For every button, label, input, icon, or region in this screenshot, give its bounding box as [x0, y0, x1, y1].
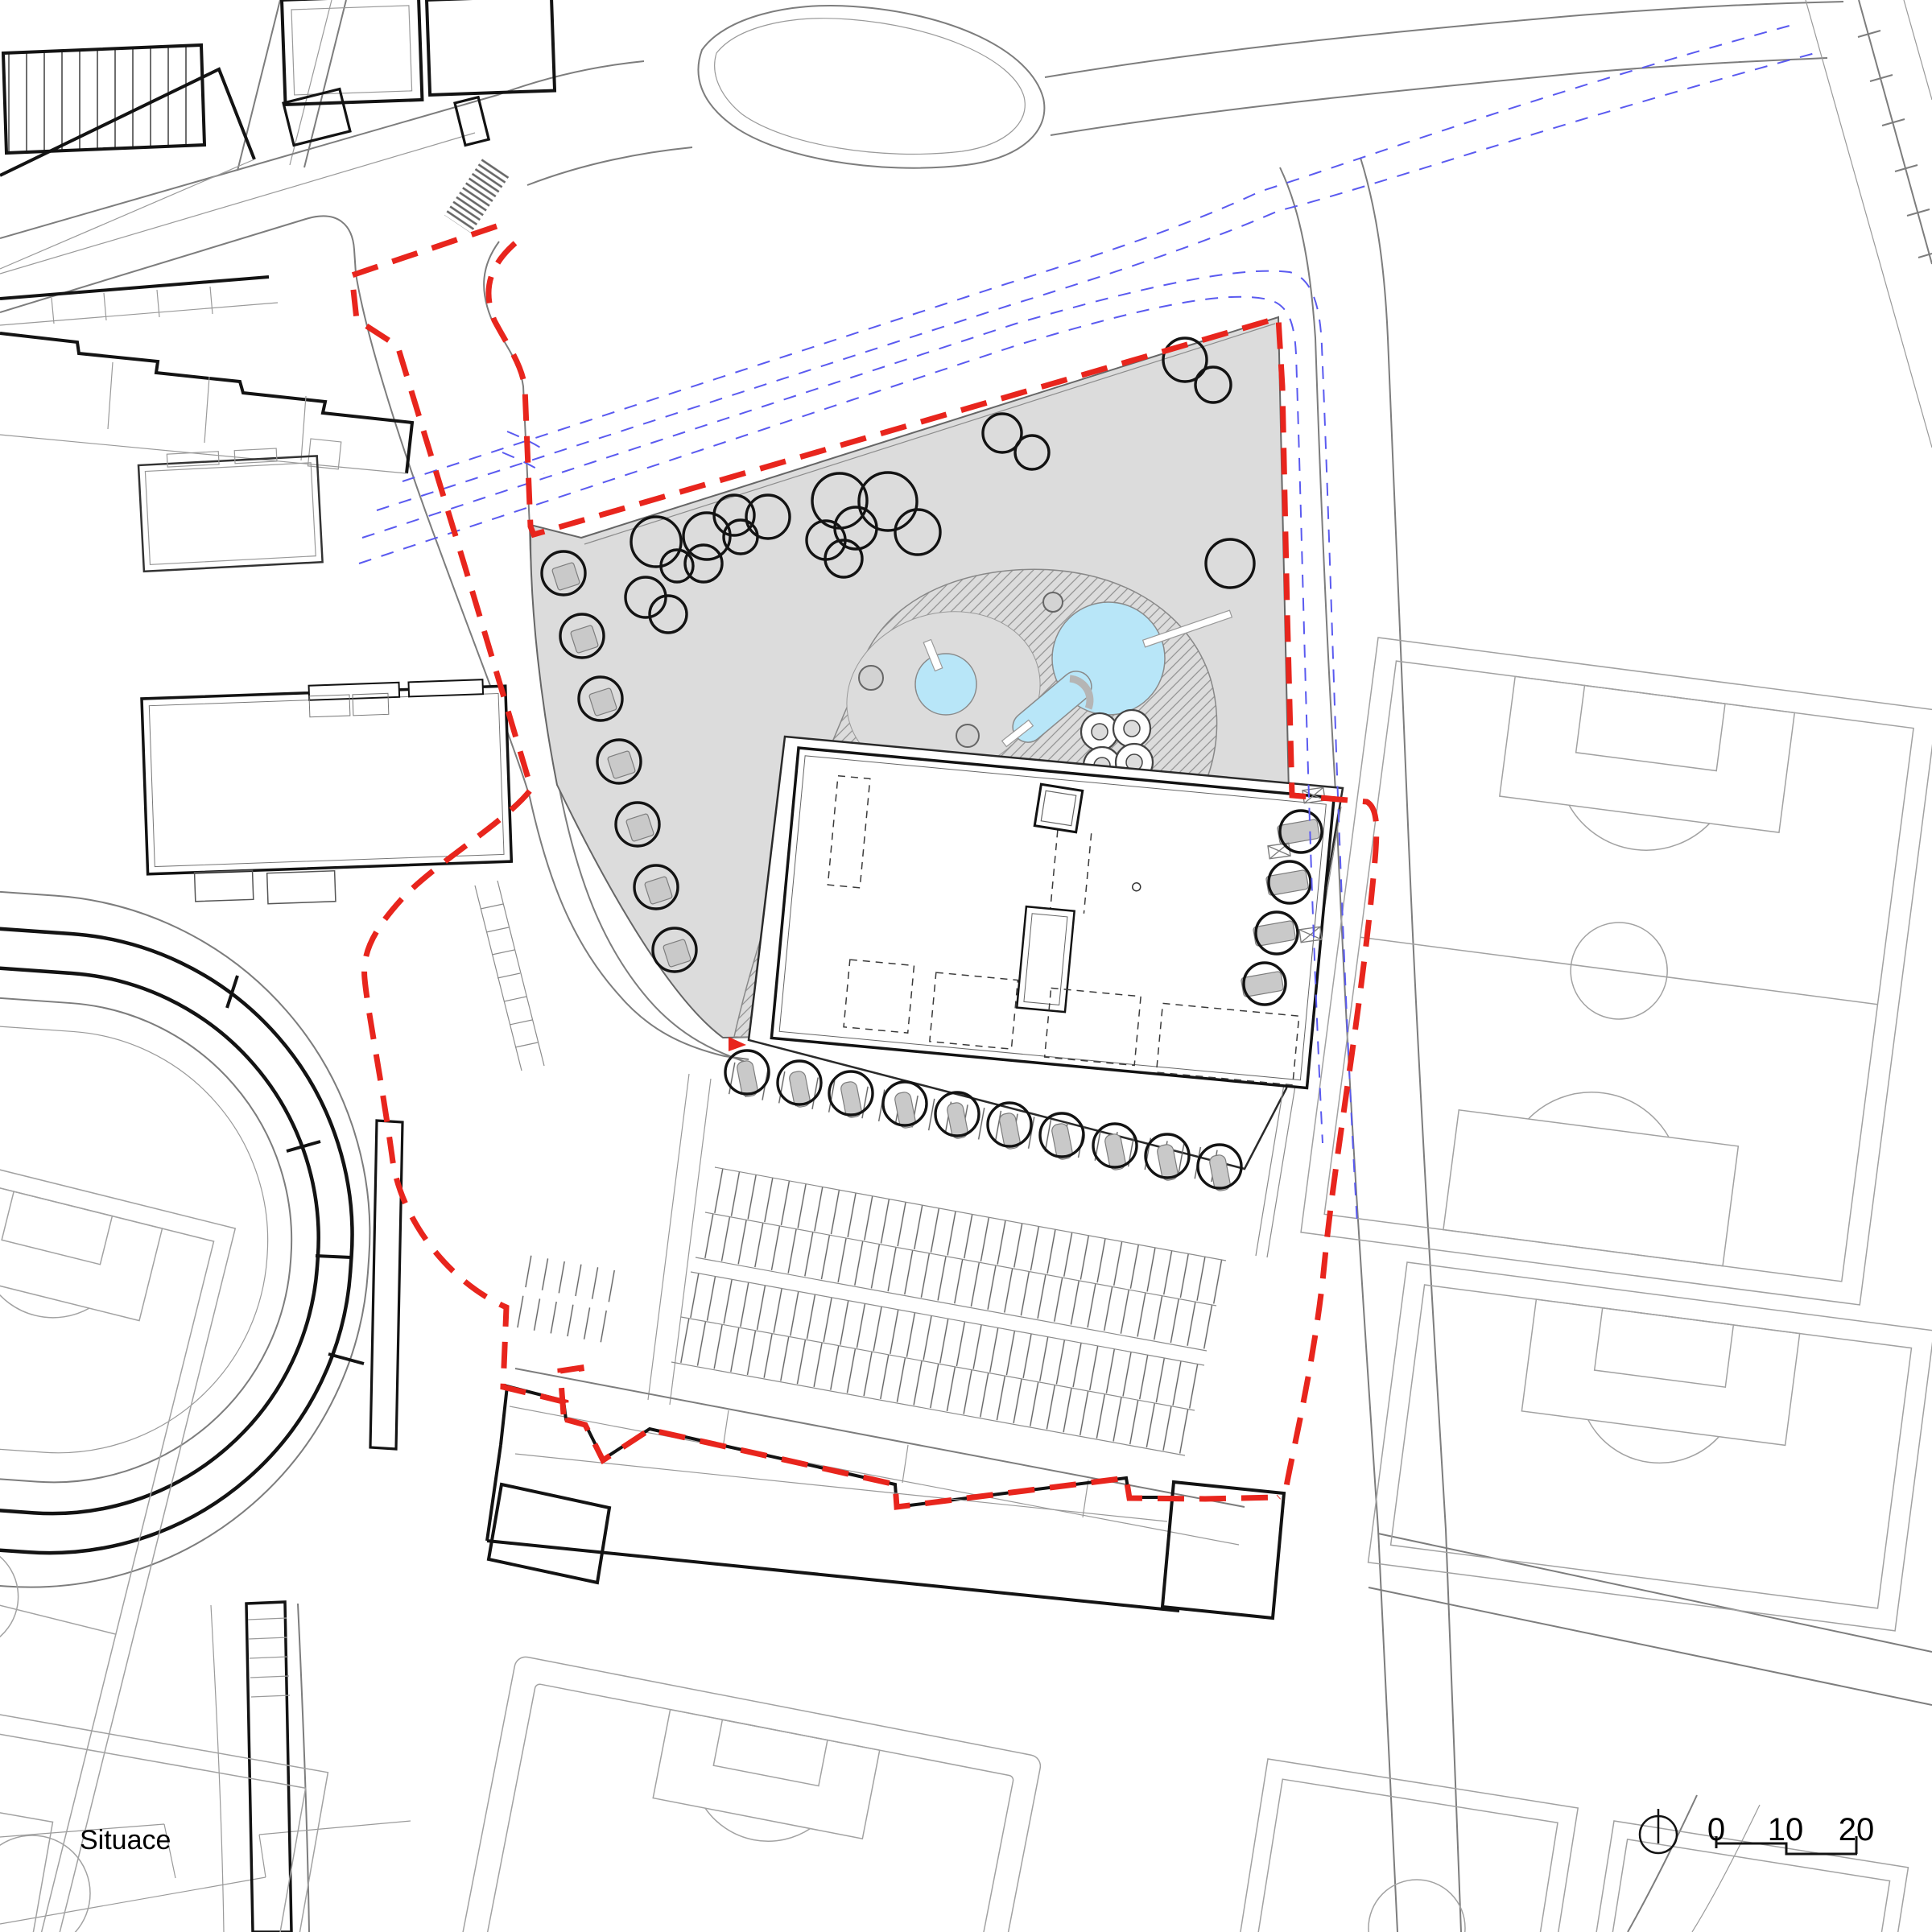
roof-pool: [1017, 906, 1074, 1012]
site-plan-drawing: Situace 0 10 20: [0, 0, 1932, 1932]
drawing-title: Situace: [80, 1825, 171, 1856]
title-block: Situace 0 10 20: [80, 1809, 1874, 1856]
kids-pool: [915, 654, 976, 715]
street-bays: [475, 881, 544, 1071]
block-e-building: [142, 679, 513, 908]
slide-landing: [1034, 784, 1082, 832]
shrub-icon: [859, 666, 883, 690]
north-blocks: [282, 0, 555, 145]
running-track: [0, 865, 393, 1932]
football-pitch-bottom-center: [452, 1655, 1042, 1932]
shrub-icon: [956, 724, 979, 747]
shrub-icon: [1043, 592, 1063, 612]
entrance-marker: [729, 1037, 746, 1051]
court-circle: [1368, 1880, 1465, 1932]
pedestrian-crossing: [444, 158, 510, 233]
scale-bar: 0 10 20: [1707, 1812, 1874, 1854]
strip-building: [246, 1602, 291, 1932]
mid-building: [138, 446, 322, 571]
site-building: [749, 737, 1343, 1257]
football-pitch-upper-right: [1301, 638, 1932, 1305]
fence-line: [1806, 0, 1932, 448]
scale-label-0: 0: [1707, 1812, 1725, 1847]
football-pitch-bottom-left: [0, 1703, 328, 1932]
rowhouse-block: [3, 45, 204, 153]
infield-pitch: [0, 1145, 235, 1932]
scale-label-20: 20: [1839, 1812, 1875, 1847]
scale-label-10: 10: [1768, 1812, 1804, 1847]
track-side-strip: [370, 1121, 402, 1449]
north-indicator-icon: [1640, 1809, 1677, 1853]
football-pitch-lower-right: [1368, 1262, 1932, 1631]
court-bottom-right-1: [1232, 1759, 1579, 1932]
